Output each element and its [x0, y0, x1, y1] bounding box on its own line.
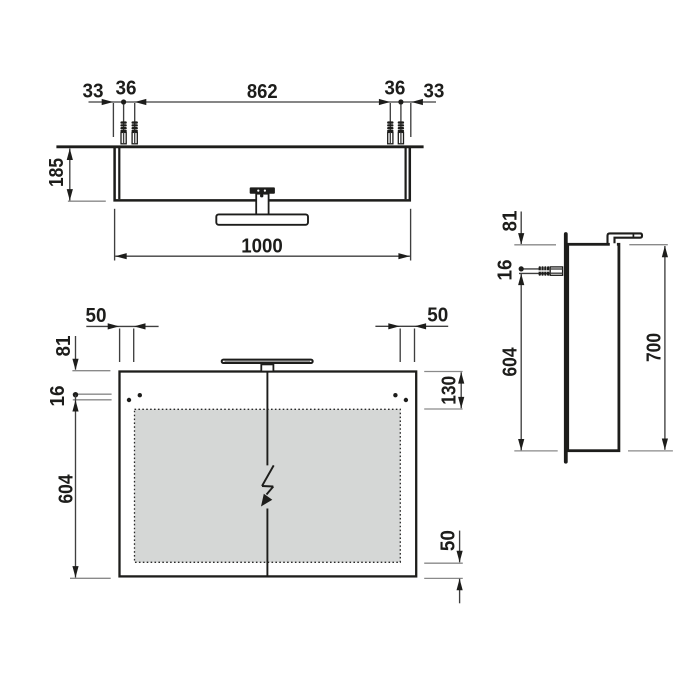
svg-text:50: 50: [438, 530, 460, 551]
svg-text:862: 862: [247, 81, 278, 103]
svg-text:36: 36: [384, 77, 405, 99]
svg-text:36: 36: [116, 77, 137, 99]
svg-text:16: 16: [47, 386, 69, 407]
svg-text:700: 700: [643, 333, 665, 362]
svg-text:33: 33: [423, 80, 444, 102]
svg-text:185: 185: [46, 158, 68, 187]
svg-text:1000: 1000: [241, 235, 283, 257]
svg-text:50: 50: [86, 305, 107, 327]
svg-text:81: 81: [53, 336, 75, 357]
svg-text:604: 604: [500, 347, 522, 377]
svg-text:33: 33: [83, 80, 104, 102]
svg-text:16: 16: [494, 260, 516, 281]
svg-text:130: 130: [439, 376, 461, 405]
svg-text:604: 604: [55, 474, 77, 504]
svg-text:81: 81: [500, 211, 522, 232]
svg-text:50: 50: [427, 304, 448, 326]
